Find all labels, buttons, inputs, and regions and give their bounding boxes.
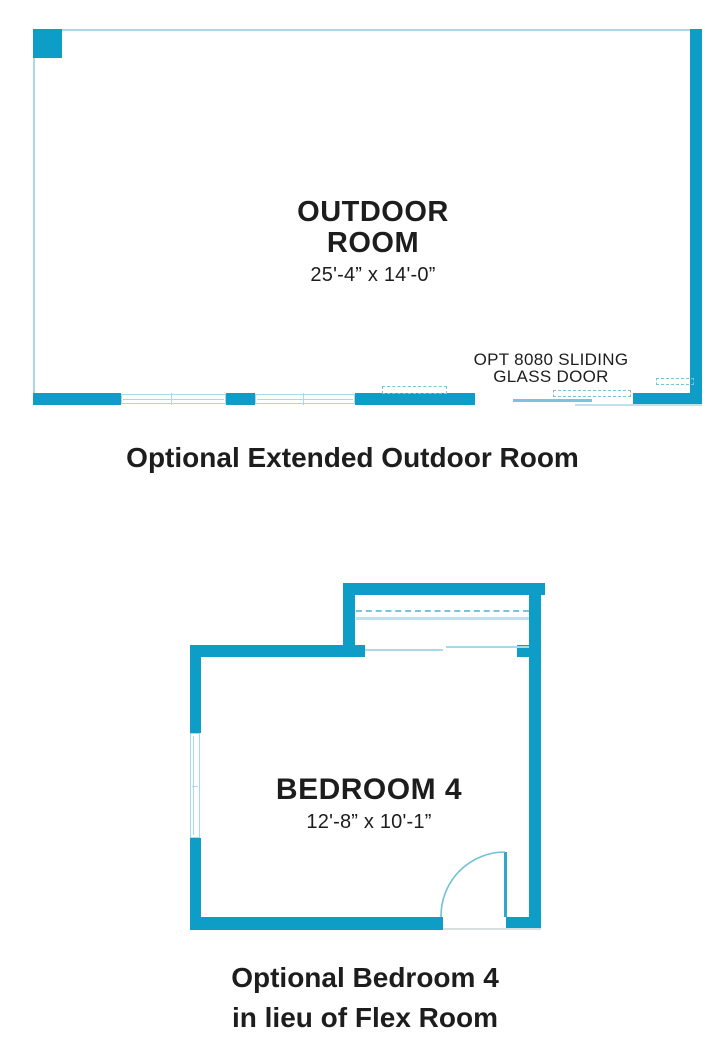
sliding-door-label-line1: OPT 8080 SLIDING [441, 351, 661, 368]
bedroom-caption-line1: Optional Bedroom 4 [25, 958, 705, 998]
window-glass-line [123, 399, 224, 400]
window-divider [303, 393, 304, 405]
window-glass-line [257, 399, 353, 400]
outdoor-room-left-line [33, 29, 35, 394]
corner-post [33, 29, 62, 58]
bedroom-label: BEDROOM 4 12'-8” x 10'-1” [219, 774, 519, 833]
window-segment [255, 394, 355, 404]
bedroom-bottom-wall-left [190, 917, 443, 930]
top-opening-line [365, 649, 443, 651]
outdoor-room-dimensions: 25'-4” x 14'-0” [223, 264, 523, 286]
bedroom-right-wall [529, 583, 541, 930]
bedroom-top-wall [190, 645, 365, 657]
window-divider [192, 786, 198, 787]
outdoor-room-top-line [33, 29, 691, 31]
bedroom-title: BEDROOM 4 [219, 774, 519, 806]
outdoor-room-caption: Optional Extended Outdoor Room [0, 438, 705, 478]
sliding-door-label-line2: GLASS DOOR [441, 368, 661, 385]
door-threshold-line [443, 928, 541, 930]
window-segment [121, 394, 226, 404]
bedroom-window [190, 733, 200, 838]
sliding-door-track [656, 378, 694, 385]
bedroom-dimensions: 12'-8” x 10'-1” [219, 811, 519, 833]
bottom-wall-segment [33, 393, 121, 405]
window-divider [171, 393, 172, 405]
outdoor-room-title-line2: ROOM [223, 228, 523, 259]
sliding-door-panel [513, 399, 592, 402]
outdoor-room-title-line1: OUTDOOR [223, 197, 523, 228]
bay-top-wall [343, 583, 545, 595]
sliding-door-track [382, 386, 447, 394]
bay-window-line [356, 617, 529, 620]
sliding-door-track [553, 390, 631, 397]
bottom-wall-segment [355, 393, 475, 405]
sliding-door-sill-line [575, 404, 702, 406]
bedroom-caption-line2: in lieu of Flex Room [25, 998, 705, 1038]
outdoor-room-label: OUTDOOR ROOM 25'-4” x 14'-0” [223, 197, 523, 286]
bottom-wall-segment [226, 393, 255, 405]
bedroom-left-wall-upper [190, 645, 201, 733]
outdoor-room-right-wall [690, 29, 702, 403]
top-opening-line [446, 646, 529, 648]
door-swing-arc [440, 851, 506, 918]
bay-ceiling-dashed-line [356, 610, 529, 612]
sliding-door-label: OPT 8080 SLIDING GLASS DOOR [441, 351, 661, 385]
floorplan-page: OUTDOOR ROOM 25'-4” x 14'-0” OPT 8080 SL… [0, 0, 705, 1047]
bedroom-caption: Optional Bedroom 4 in lieu of Flex Room [25, 958, 705, 1038]
